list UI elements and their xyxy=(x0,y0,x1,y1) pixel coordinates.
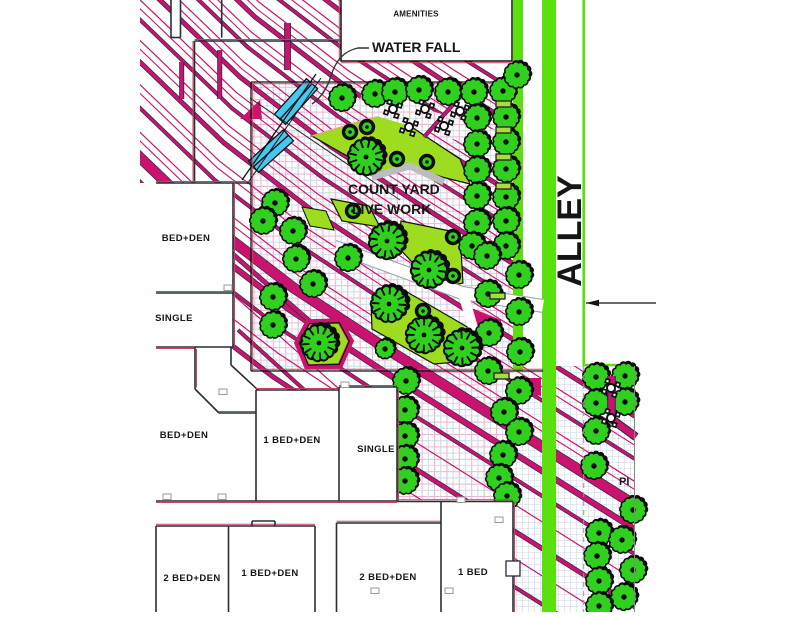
svg-text:1 BED+DEN: 1 BED+DEN xyxy=(241,568,298,579)
svg-text:BED+DEN: BED+DEN xyxy=(162,233,210,244)
svg-text:SINGLE: SINGLE xyxy=(155,313,193,324)
svg-text:2 BED+DEN: 2 BED+DEN xyxy=(359,572,416,583)
svg-text:AMENITIES: AMENITIES xyxy=(393,10,439,19)
svg-text:1 BED: 1 BED xyxy=(458,567,488,578)
svg-text:SINGLE: SINGLE xyxy=(357,444,395,455)
svg-text:ALLEY: ALLEY xyxy=(551,175,589,287)
svg-text:2 BED+DEN: 2 BED+DEN xyxy=(163,573,220,584)
svg-text:1 BED+DEN: 1 BED+DEN xyxy=(263,435,320,446)
svg-text:BED+DEN: BED+DEN xyxy=(160,430,208,441)
svg-text:PI: PI xyxy=(619,476,629,488)
svg-text:COUNT YARD: COUNT YARD xyxy=(348,181,440,197)
svg-text:LIVE WORK: LIVE WORK xyxy=(352,201,431,217)
svg-text:WATER FALL: WATER FALL xyxy=(372,39,461,55)
